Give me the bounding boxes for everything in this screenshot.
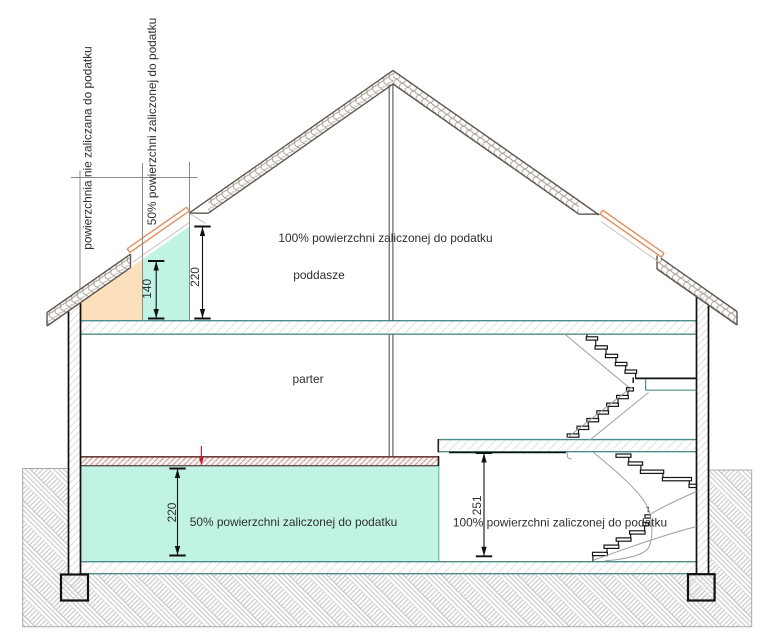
svg-text:140: 140	[140, 278, 154, 298]
svg-text:poddasze: poddasze	[293, 268, 345, 282]
svg-text:50% powierzchni zaliczonej do: 50% powierzchni zaliczonej do podatku	[145, 18, 159, 226]
svg-text:50% powierzchni zaliczonej do: 50% powierzchni zaliczonej do podatku	[190, 515, 398, 529]
svg-text:220: 220	[188, 267, 202, 287]
svg-text:parter: parter	[292, 372, 323, 386]
svg-text:220: 220	[165, 502, 179, 522]
svg-text:powierzchnia nie zaliczana do: powierzchnia nie zaliczana do podatku	[80, 46, 94, 250]
svg-text:100% powierzchni zaliczonej do: 100% powierzchni zaliczonej do podatku	[453, 516, 667, 530]
svg-text:251: 251	[470, 495, 484, 515]
svg-text:100% powierzchni zaliczonej do: 100% powierzchni zaliczonej do podatku	[278, 231, 492, 245]
